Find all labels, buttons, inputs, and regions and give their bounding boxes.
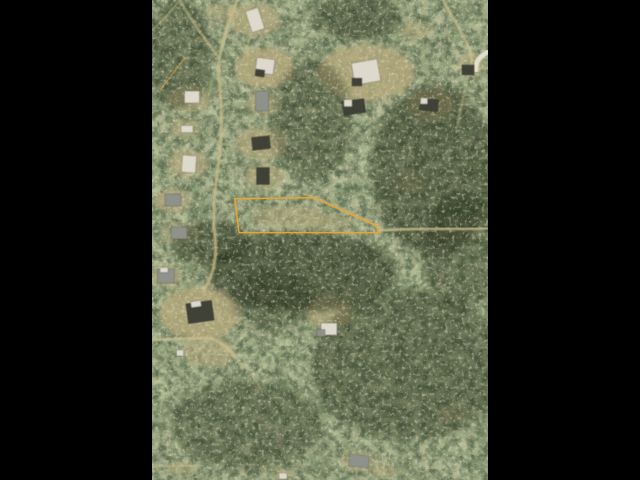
house-roof — [256, 91, 269, 111]
house-roof — [171, 227, 187, 239]
house-roof — [181, 126, 193, 133]
letterbox-bar-left — [0, 0, 152, 480]
house-roof — [344, 100, 352, 107]
letterbox-stage — [0, 0, 640, 480]
house-roof — [352, 78, 362, 86]
house-roof — [348, 454, 369, 468]
house-roof — [160, 268, 168, 273]
house-roof — [317, 330, 325, 337]
house-roof — [279, 473, 287, 479]
house-roof — [191, 300, 202, 307]
house-roof — [177, 350, 184, 356]
aerial-photo — [152, 0, 488, 480]
house-roof — [185, 91, 200, 103]
shadow-speckle-texture — [152, 0, 488, 480]
house-roof — [181, 155, 196, 173]
letterbox-bar-right — [488, 0, 640, 480]
house-roof — [462, 65, 474, 75]
house-roof — [165, 194, 181, 206]
house-roof — [421, 98, 428, 104]
aerial-photo-canvas — [152, 0, 488, 480]
house-roof — [257, 168, 270, 185]
house-roof — [255, 69, 265, 77]
house-roof — [251, 136, 270, 151]
